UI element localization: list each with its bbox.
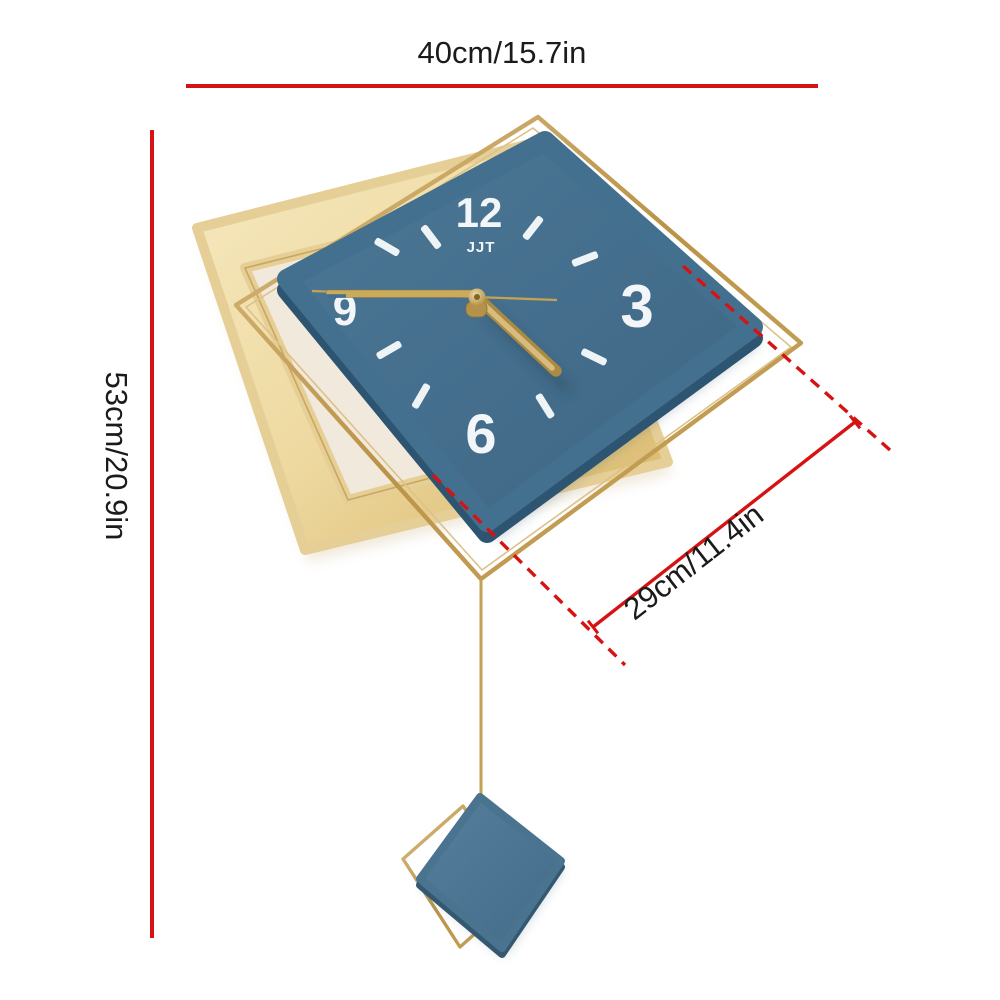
- face-dimension-label: 29cm/11.4in: [617, 497, 770, 627]
- pendulum-bob: [420, 797, 561, 948]
- minute-hand: [326, 290, 477, 298]
- numeral-6: 6: [465, 402, 496, 465]
- numeral-12: 12: [456, 189, 503, 236]
- brand-logo: JJT: [467, 239, 496, 256]
- minute-hand-notch: [326, 294, 346, 298]
- diagram-canvas: 12 JJT 3 6 9: [0, 0, 1000, 1000]
- height-dimension-label: 53cm/20.9in: [99, 372, 134, 541]
- product-diagram: 12 JJT 3 6 9: [0, 0, 1000, 1000]
- hands-hub-pin: [474, 294, 480, 300]
- numeral-3: 3: [620, 273, 653, 340]
- width-dimension-label: 40cm/15.7in: [418, 35, 587, 70]
